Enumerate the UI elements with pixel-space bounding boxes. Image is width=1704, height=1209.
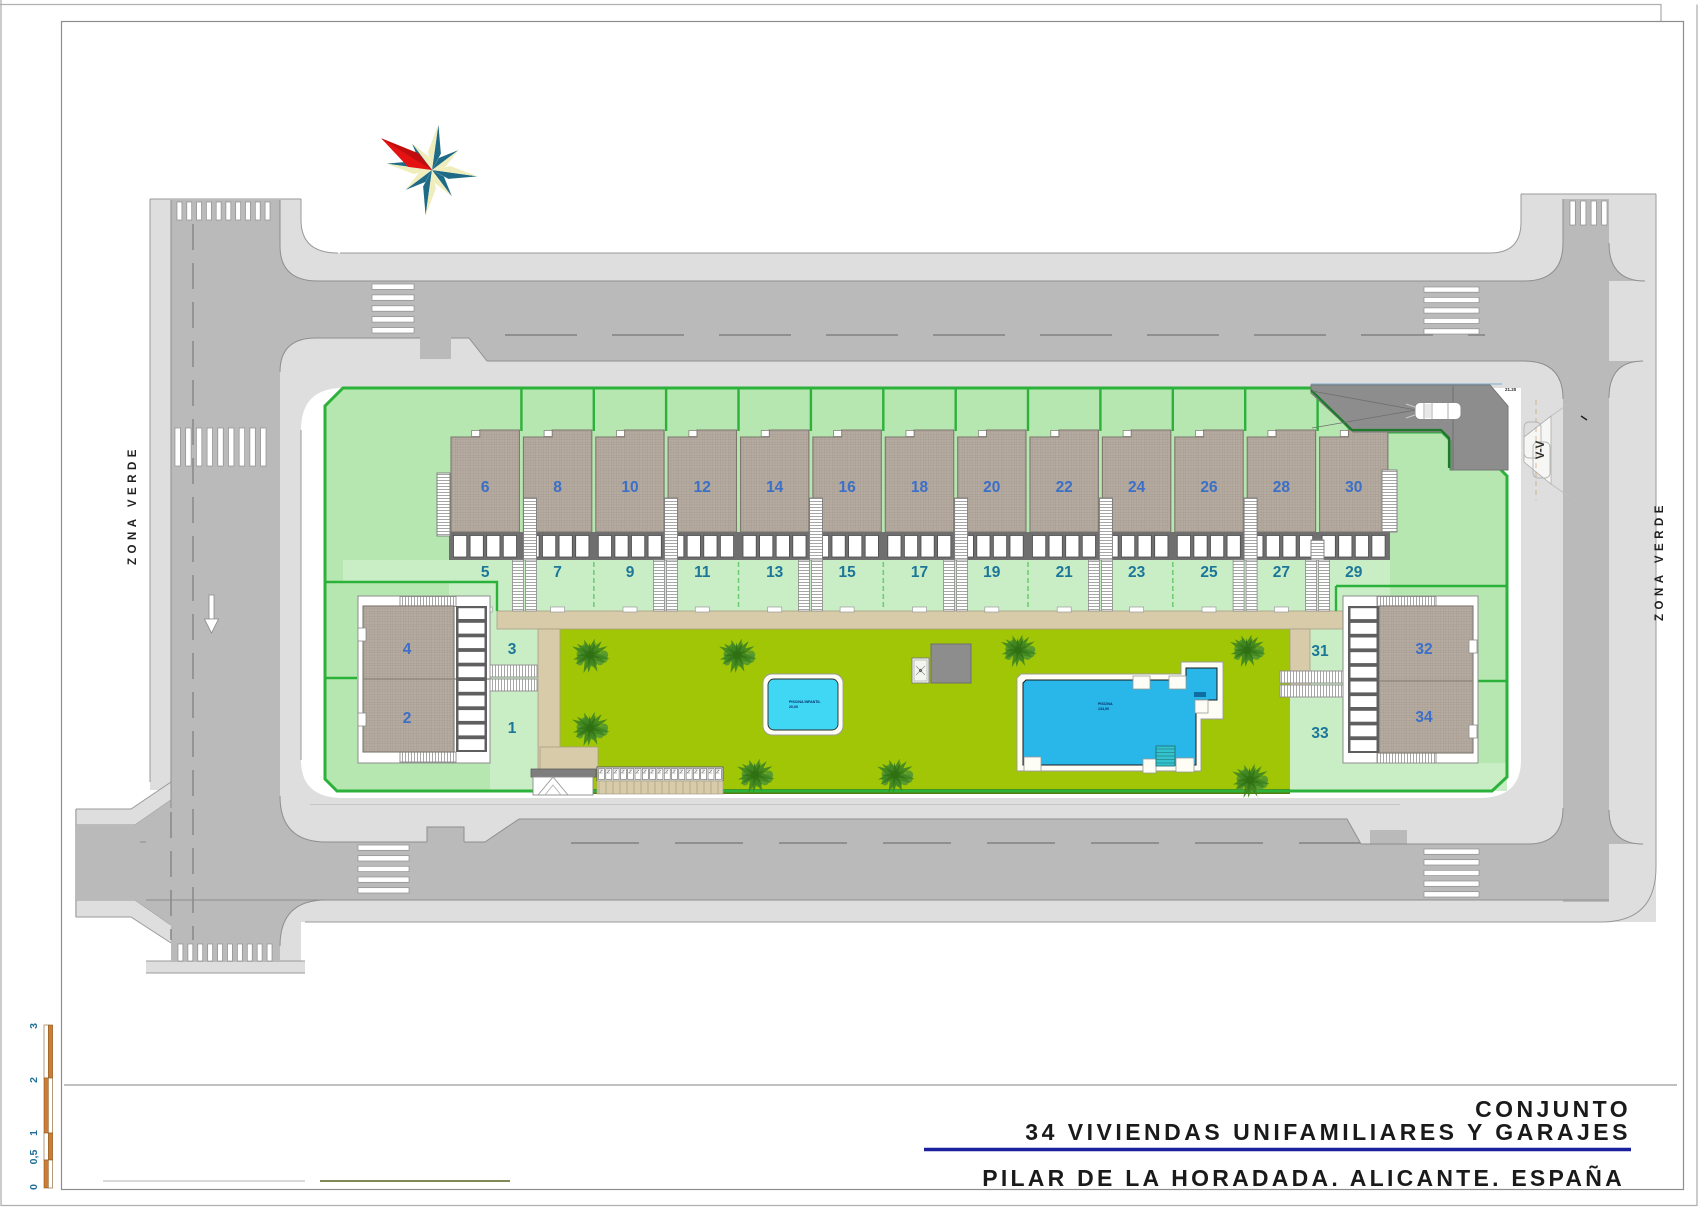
svg-text:21: 21 xyxy=(1056,564,1074,581)
svg-text:18: 18 xyxy=(911,479,929,496)
svg-text:26: 26 xyxy=(1200,479,1218,496)
svg-text:24: 24 xyxy=(1128,479,1146,496)
svg-text:3: 3 xyxy=(508,641,517,658)
svg-text:ZONA VERDE: ZONA VERDE xyxy=(127,445,139,565)
svg-text:V-V: V-V xyxy=(1535,440,1547,459)
svg-text:14: 14 xyxy=(766,479,784,496)
svg-text:16: 16 xyxy=(838,479,856,496)
svg-text:134,00: 134,00 xyxy=(1098,707,1109,711)
svg-text:32: 32 xyxy=(1415,641,1432,658)
svg-text:33: 33 xyxy=(1311,725,1329,742)
svg-text:9: 9 xyxy=(626,564,635,581)
svg-text:6: 6 xyxy=(481,479,490,496)
svg-text:25: 25 xyxy=(1200,564,1218,581)
svg-text:13: 13 xyxy=(766,564,784,581)
svg-text:31: 31 xyxy=(1311,643,1329,660)
svg-text:PISCINA INFANTIL: PISCINA INFANTIL xyxy=(789,700,821,704)
svg-text:22: 22 xyxy=(1056,479,1073,496)
svg-text:0: 0 xyxy=(28,1184,40,1190)
svg-text:4: 4 xyxy=(403,641,412,658)
svg-text:11: 11 xyxy=(694,564,711,581)
svg-text:PILAR DE LA HORADADA. ALICANTE: PILAR DE LA HORADADA. ALICANTE. ESPAÑA xyxy=(982,1164,1625,1191)
svg-text:1: 1 xyxy=(28,1130,40,1136)
svg-text:ZONA VERDE: ZONA VERDE xyxy=(1654,501,1666,621)
svg-text:30: 30 xyxy=(1345,479,1362,496)
svg-text:2: 2 xyxy=(28,1077,40,1083)
svg-text:10: 10 xyxy=(621,479,638,496)
svg-text:1: 1 xyxy=(508,720,517,737)
svg-text:2: 2 xyxy=(403,710,412,727)
svg-text:19: 19 xyxy=(983,564,1001,581)
svg-text:20: 20 xyxy=(983,479,1000,496)
svg-text:34 VIVIENDAS UNIFAMILIARES Y G: 34 VIVIENDAS UNIFAMILIARES Y GARAJES xyxy=(1025,1119,1631,1145)
svg-text:3: 3 xyxy=(28,1023,40,1029)
svg-text:0,5: 0,5 xyxy=(28,1150,40,1165)
svg-text:12: 12 xyxy=(694,479,711,496)
svg-text:17: 17 xyxy=(911,564,928,581)
svg-text:34: 34 xyxy=(1415,709,1433,726)
svg-text:23: 23 xyxy=(1128,564,1146,581)
svg-text:29: 29 xyxy=(1345,564,1363,581)
svg-text:8: 8 xyxy=(553,479,562,496)
svg-text:7: 7 xyxy=(553,564,562,581)
svg-text:20,00: 20,00 xyxy=(789,705,798,709)
svg-text:28: 28 xyxy=(1273,479,1291,496)
svg-text:15: 15 xyxy=(838,564,856,581)
svg-text:PISCINA: PISCINA xyxy=(1098,702,1113,706)
svg-text:21.20: 21.20 xyxy=(1505,387,1517,392)
svg-text:27: 27 xyxy=(1273,564,1290,581)
svg-text:5: 5 xyxy=(481,564,490,581)
